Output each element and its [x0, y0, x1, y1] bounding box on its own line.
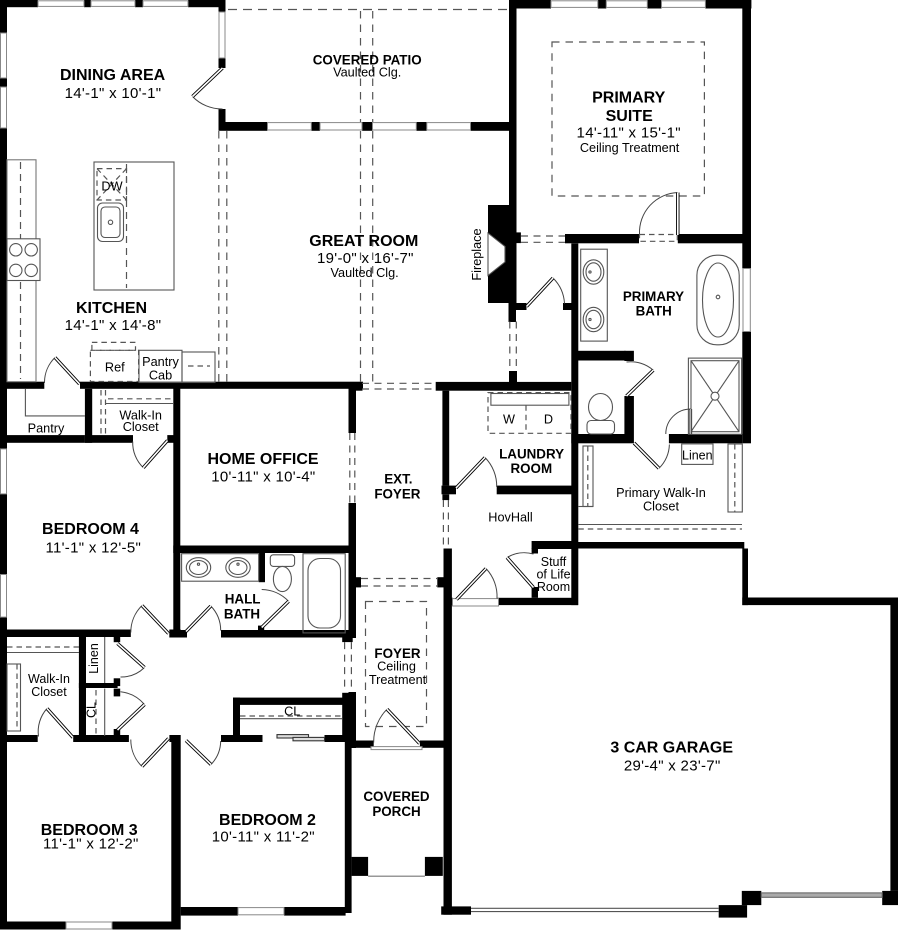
svg-text:Cab: Cab: [149, 369, 172, 383]
svg-text:Fireplace: Fireplace: [470, 228, 484, 280]
svg-text:3 CAR GARAGE: 3 CAR GARAGE: [610, 740, 733, 757]
svg-text:Linen: Linen: [682, 449, 713, 463]
svg-text:10'-11" x 10'-4": 10'-11" x 10'-4": [211, 469, 315, 486]
svg-text:Room: Room: [537, 580, 570, 594]
svg-text:BEDROOM 2: BEDROOM 2: [219, 812, 316, 829]
svg-text:PORCH: PORCH: [372, 804, 420, 819]
svg-text:HALL: HALL: [225, 592, 261, 607]
svg-text:Pantry: Pantry: [142, 355, 179, 369]
svg-text:HOME OFFICE: HOME OFFICE: [207, 451, 318, 468]
svg-text:19'-0" x 16'-7": 19'-0" x 16'-7": [317, 250, 414, 267]
svg-text:EXT.: EXT.: [384, 472, 412, 487]
svg-text:Vaulted Clg.: Vaulted Clg.: [333, 66, 401, 80]
svg-text:COVERED: COVERED: [363, 789, 430, 804]
svg-text:SUITE: SUITE: [606, 108, 653, 125]
svg-text:BATH: BATH: [636, 303, 672, 318]
svg-text:FOYER: FOYER: [374, 487, 420, 502]
svg-text:14'-1" x 10'-1": 14'-1" x 10'-1": [65, 85, 162, 102]
svg-text:DINING AREA: DINING AREA: [60, 67, 166, 84]
svg-text:Treatment: Treatment: [369, 673, 427, 687]
svg-text:14'-1" x 14'-8": 14'-1" x 14'-8": [65, 317, 162, 334]
svg-text:Primary Walk-In: Primary Walk-In: [616, 486, 706, 500]
svg-text:Closet: Closet: [31, 685, 67, 699]
svg-text:Closet: Closet: [643, 500, 679, 514]
svg-text:D: D: [544, 413, 553, 427]
svg-text:LAUNDRY: LAUNDRY: [499, 447, 564, 462]
svg-text:Vaulted Clg.: Vaulted Clg.: [331, 266, 399, 280]
svg-text:14'-11" x 15'-1": 14'-11" x 15'-1": [577, 125, 681, 142]
svg-text:Ceiling: Ceiling: [377, 660, 416, 674]
svg-text:29'-4" x 23'-7": 29'-4" x 23'-7": [624, 758, 721, 775]
svg-text:BEDROOM 4: BEDROOM 4: [42, 521, 139, 538]
svg-text:Closet: Closet: [123, 420, 159, 434]
svg-text:GREAT ROOM: GREAT ROOM: [309, 233, 418, 250]
svg-text:Pantry: Pantry: [28, 422, 65, 436]
svg-text:Walk-In: Walk-In: [28, 672, 70, 686]
svg-text:CL: CL: [85, 702, 99, 718]
svg-text:KITCHEN: KITCHEN: [76, 300, 147, 317]
svg-text:Ref: Ref: [105, 361, 125, 375]
svg-text:11'-1" x 12'-5": 11'-1" x 12'-5": [45, 539, 141, 556]
svg-text:DW: DW: [101, 180, 122, 194]
svg-text:11'-1" x 12'-2": 11'-1" x 12'-2": [43, 835, 139, 852]
svg-text:W: W: [503, 413, 515, 427]
svg-text:PRIMARY: PRIMARY: [592, 90, 666, 107]
svg-text:BATH: BATH: [224, 606, 260, 621]
svg-text:10'-11" x 11'-2": 10'-11" x 11'-2": [212, 829, 315, 846]
svg-text:CL: CL: [284, 704, 300, 718]
svg-text:Ceiling Treatment: Ceiling Treatment: [580, 141, 680, 155]
svg-text:Linen: Linen: [87, 643, 101, 674]
svg-text:HovHall: HovHall: [488, 511, 532, 525]
svg-text:ROOM: ROOM: [510, 461, 552, 476]
svg-text:PRIMARY: PRIMARY: [623, 289, 684, 304]
